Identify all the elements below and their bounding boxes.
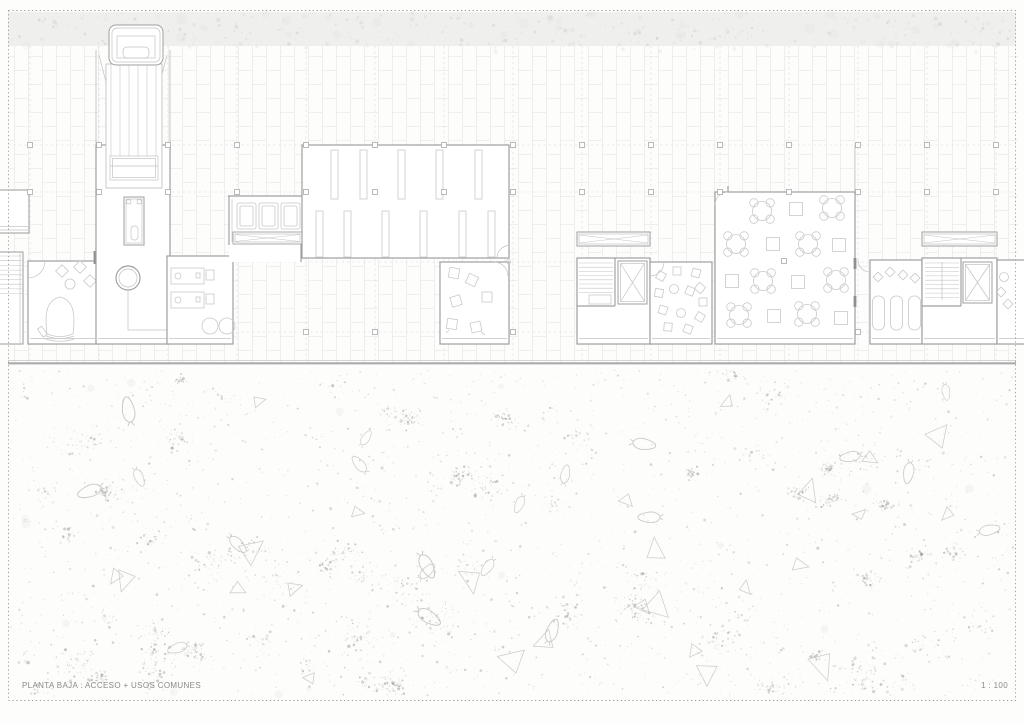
plan-scale-label: 1 : 100	[950, 681, 1008, 690]
desk-room	[167, 256, 235, 344]
lounge-room	[28, 251, 97, 344]
bench-niche	[228, 196, 302, 262]
edge-room-left	[0, 190, 29, 233]
edge-stair-left	[0, 252, 23, 344]
plan-title-label: PLANTA BAJA : ACCESO + USOS COMUNES	[22, 681, 201, 690]
floor-plan-svg	[0, 0, 1024, 724]
edge-room-right	[996, 260, 1024, 344]
armchair-room	[440, 259, 511, 344]
drawing-sheet: PLANTA BAJA : ACCESO + USOS COMUNES 1 : …	[0, 0, 1024, 724]
main-hall	[302, 145, 510, 258]
stool-room	[650, 262, 712, 344]
ground-stipple	[10, 369, 1015, 698]
